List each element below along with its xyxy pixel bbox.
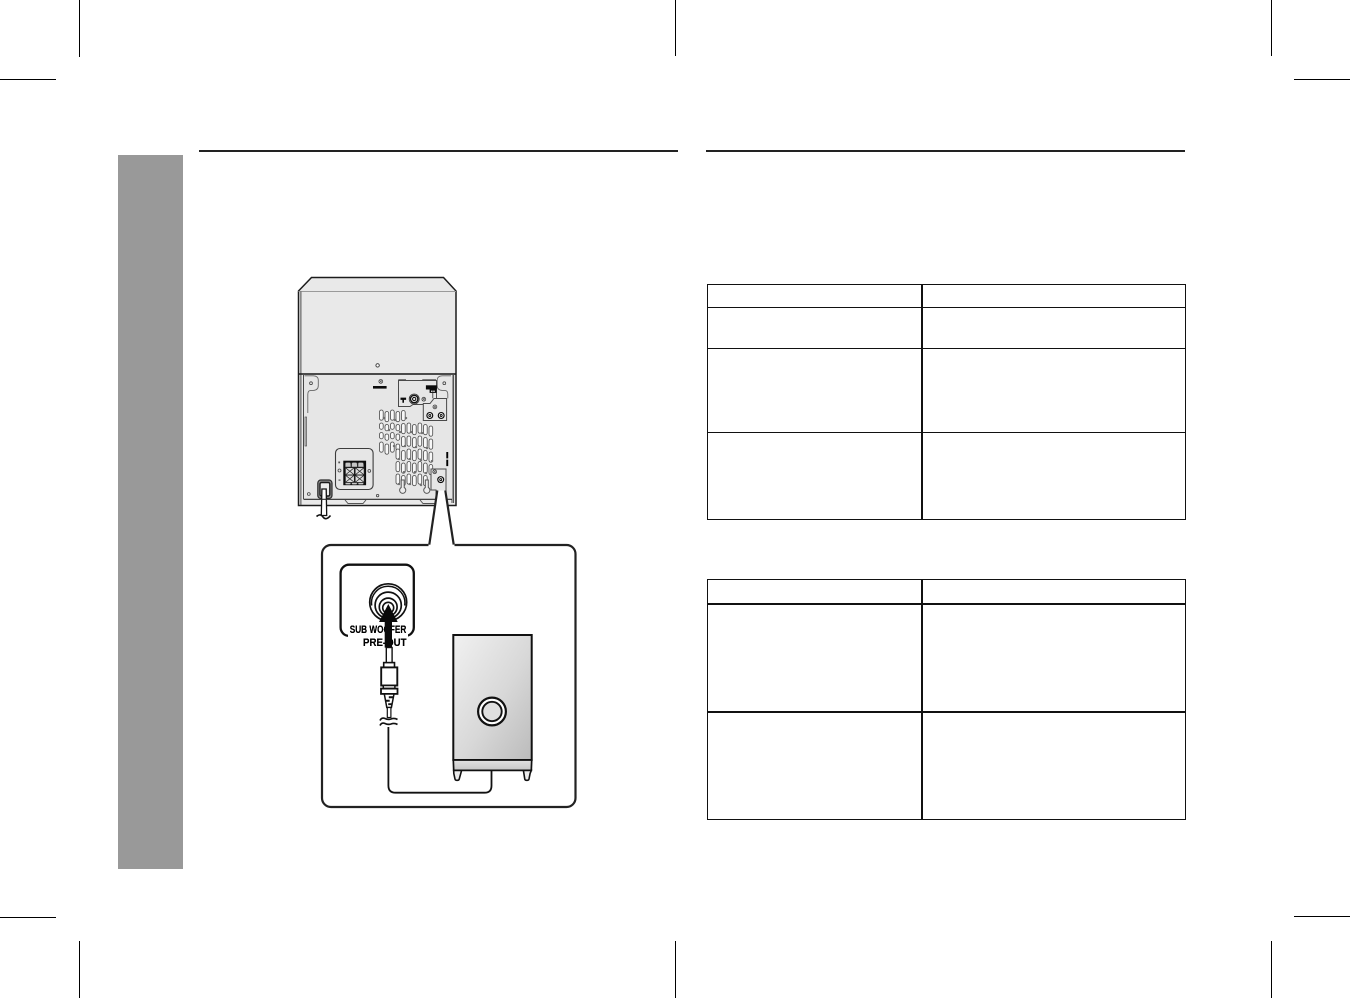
svg-text:SUB WOOFER: SUB WOOFER <box>350 624 407 636</box>
